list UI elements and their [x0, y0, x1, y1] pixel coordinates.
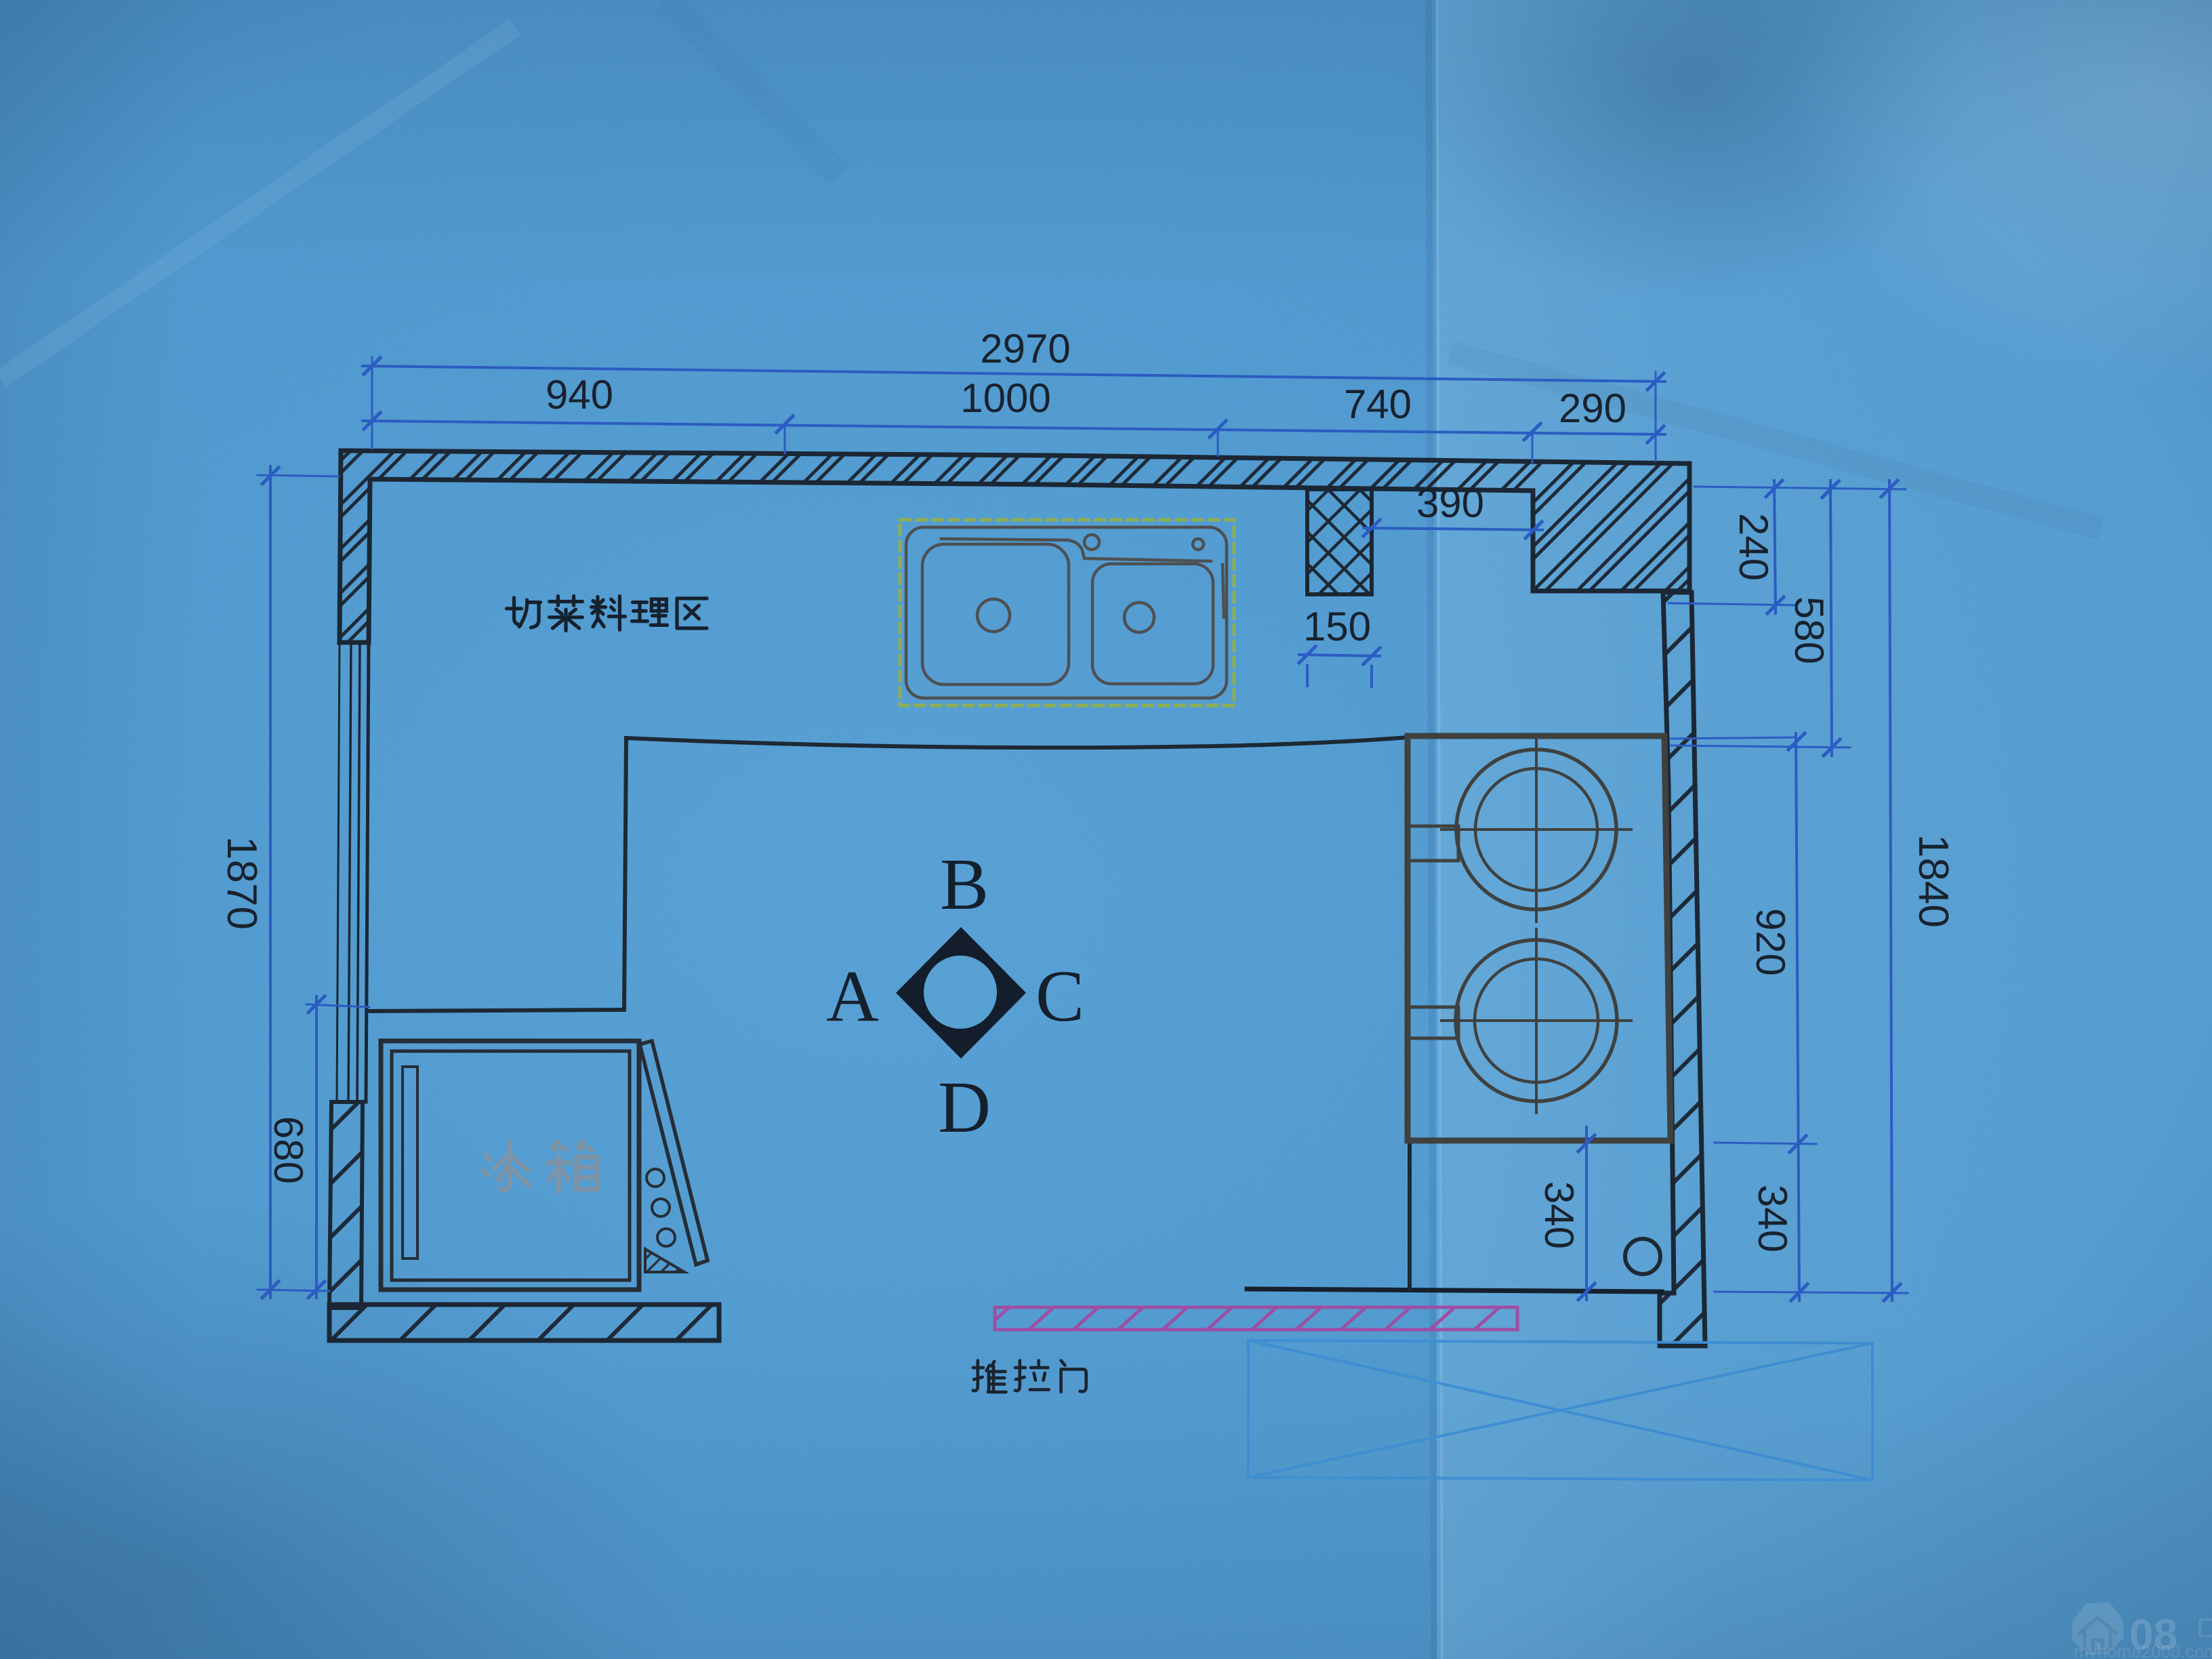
svg-text:940: 940	[546, 372, 613, 417]
svg-text:2970: 2970	[980, 326, 1070, 371]
svg-text:340: 340	[1536, 1181, 1582, 1249]
svg-text:C: C	[1036, 956, 1084, 1037]
svg-text:290: 290	[1559, 386, 1626, 431]
svg-text:680: 680	[266, 1116, 311, 1184]
svg-text:580: 580	[1786, 596, 1832, 664]
svg-text:myhome2008.com: myhome2008.com	[2074, 1641, 2212, 1659]
svg-text:150: 150	[1303, 604, 1371, 649]
svg-text:920: 920	[1748, 908, 1793, 976]
svg-text:B: B	[940, 844, 989, 925]
svg-text:240: 240	[1731, 513, 1776, 581]
svg-text:740: 740	[1344, 382, 1412, 427]
svg-text:D: D	[938, 1067, 991, 1148]
svg-text:1840: 1840	[1910, 834, 1957, 928]
svg-text:1000: 1000	[960, 375, 1050, 421]
svg-text:A: A	[826, 956, 879, 1037]
svg-text:340: 340	[1750, 1185, 1795, 1252]
svg-text:390: 390	[1416, 480, 1484, 526]
svg-text:1870: 1870	[218, 836, 265, 930]
